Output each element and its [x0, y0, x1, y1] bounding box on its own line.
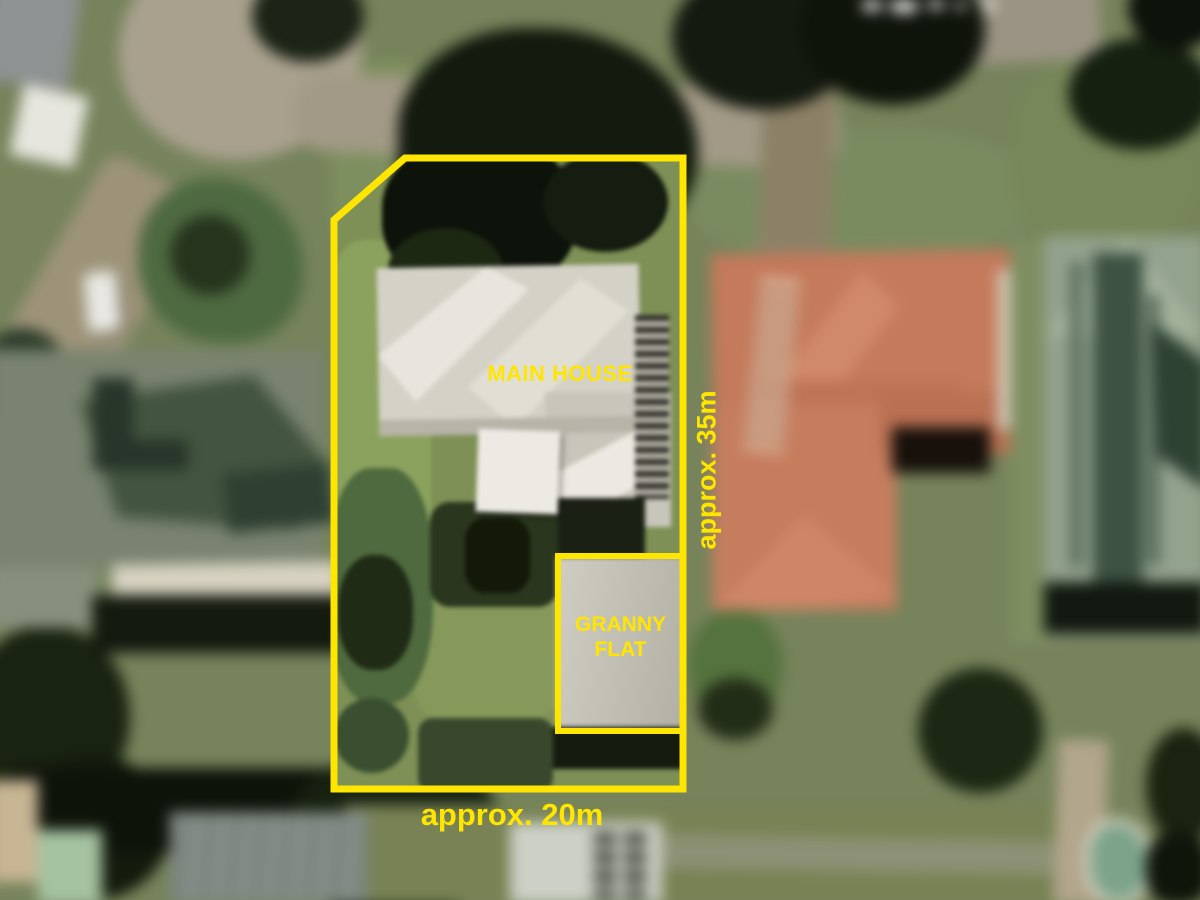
width-measurement-label: approx. 20m [421, 797, 604, 833]
depth-measurement-label: approx. 35m [692, 390, 723, 549]
boundary-overlay [0, 0, 1200, 900]
aerial-photo: MAIN HOUSE GRANNY FLAT approx. 35m appro… [0, 0, 1200, 900]
main-house-label: MAIN HOUSE [487, 361, 633, 387]
granny-flat-label: GRANNY FLAT [563, 612, 678, 662]
property-boundary [334, 158, 683, 789]
